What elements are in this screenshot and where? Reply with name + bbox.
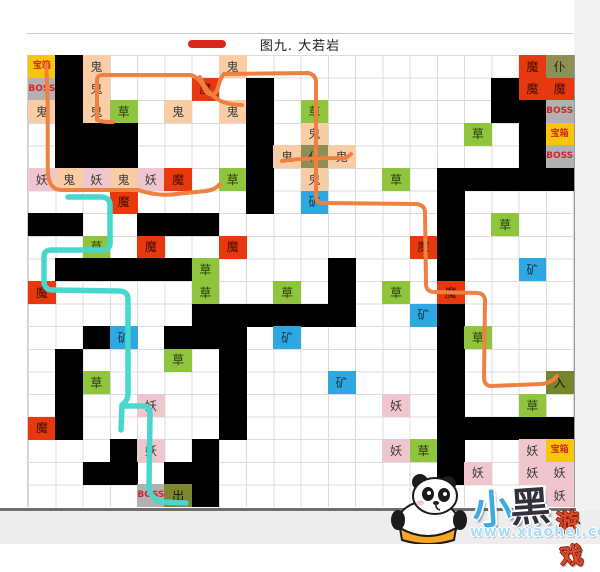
cell-demon: 妖 — [519, 439, 547, 462]
cell-wall — [164, 213, 192, 236]
cell-ore: 矿 — [328, 371, 356, 394]
cell-wall — [246, 168, 274, 191]
cell-grass: 草 — [382, 168, 410, 191]
cell-wall — [437, 371, 465, 394]
cell-wall — [246, 191, 274, 214]
cell-wall — [437, 213, 465, 236]
cell-devil: 魔 — [164, 168, 192, 191]
cell-ghost: 鬼 — [301, 168, 329, 191]
cell-ghost: 鬼 — [83, 100, 111, 123]
cell-wall — [83, 462, 111, 485]
cell-wall — [546, 417, 574, 440]
cell-ore: 矿 — [273, 326, 301, 349]
cell-devil: 魔 — [192, 78, 220, 101]
cell-wall — [219, 371, 247, 394]
cell-devil: 魔 — [219, 236, 247, 259]
cell-wall — [328, 304, 356, 327]
cell-ghost: 鬼 — [83, 55, 111, 78]
cell-wall — [55, 417, 83, 440]
cell-wall — [137, 258, 165, 281]
cell-ghost: 鬼 — [55, 168, 83, 191]
cell-ore: 矿 — [519, 258, 547, 281]
cell-wall — [110, 258, 138, 281]
cell-devil: 魔 — [519, 55, 547, 78]
cell-wall — [219, 394, 247, 417]
cell-wall — [246, 100, 274, 123]
cell-wall — [192, 439, 220, 462]
cell-wall — [110, 145, 138, 168]
cell-wall — [55, 394, 83, 417]
cell-ghost: 鬼 — [83, 78, 111, 101]
map-title: 图九. 大若岩 — [260, 35, 340, 54]
cell-grass: 草 — [192, 281, 220, 304]
cell-ghost: 鬼 — [110, 168, 138, 191]
cell-wall — [437, 394, 465, 417]
cell-grass: 草 — [273, 281, 301, 304]
cell-wall — [273, 304, 301, 327]
cell-wall — [55, 100, 83, 123]
cell-grass: 草 — [110, 100, 138, 123]
cell-ghost: 鬼 — [328, 145, 356, 168]
cell-wall — [246, 304, 274, 327]
cell-boss: BOSS — [546, 100, 574, 123]
cell-wall — [437, 236, 465, 259]
cell-wall — [437, 439, 465, 462]
cell-demon: 妖 — [28, 168, 56, 191]
cell-wall — [55, 145, 83, 168]
cell-wall — [546, 168, 574, 191]
cell-wall — [437, 349, 465, 372]
panda-mascot-icon — [390, 470, 482, 544]
cell-wall — [55, 371, 83, 394]
cell-wall — [164, 462, 192, 485]
cell-wall — [192, 213, 220, 236]
cell-wall — [491, 417, 519, 440]
cell-wall — [437, 168, 465, 191]
cell-wall — [246, 145, 274, 168]
cell-wall — [246, 78, 274, 101]
cell-wall — [83, 326, 111, 349]
cell-chest: 宝箱 — [546, 123, 574, 146]
cell-grass: 草 — [164, 349, 192, 372]
cell-wall — [301, 304, 329, 327]
cell-wall — [437, 326, 465, 349]
title-red-dash — [188, 40, 226, 48]
cell-exit: 出 — [164, 484, 192, 507]
cell-demon: 妖 — [137, 439, 165, 462]
cell-wall — [192, 326, 220, 349]
cell-wall — [164, 258, 192, 281]
cell-grass: 草 — [491, 213, 519, 236]
cell-wall — [55, 78, 83, 101]
cell-wall — [246, 123, 274, 146]
cell-boss: BOSS — [137, 484, 165, 507]
cell-wall — [491, 100, 519, 123]
map-title-bar: 图九. 大若岩 — [27, 33, 573, 56]
cell-grass: 草 — [410, 439, 438, 462]
game-map-page: 图九. 大若岩 宝箱鬼鬼魔仆BOSS鬼魔魔魔鬼鬼草鬼鬼草BOSS鬼草宝箱鬼仆鬼B… — [0, 0, 600, 544]
cell-boss: BOSS — [546, 145, 574, 168]
cell-chest: 宝箱 — [546, 439, 574, 462]
cell-grass: 草 — [382, 281, 410, 304]
cell-wall — [437, 191, 465, 214]
cell-entrance: 入 — [546, 371, 574, 394]
cell-grass: 草 — [192, 258, 220, 281]
cell-wall — [83, 258, 111, 281]
cell-devil: 魔 — [28, 281, 56, 304]
cell-chest: 宝箱 — [28, 55, 56, 78]
cell-devil: 魔 — [519, 78, 547, 101]
cell-grass: 草 — [83, 371, 111, 394]
cell-devil: 魔 — [110, 191, 138, 214]
cell-wall — [464, 168, 492, 191]
cell-grass: 草 — [219, 168, 247, 191]
cell-devil: 魔 — [137, 236, 165, 259]
cell-ghost: 鬼 — [273, 145, 301, 168]
cell-wall — [519, 417, 547, 440]
cell-boss: BOSS — [28, 78, 56, 101]
cell-wall — [491, 168, 519, 191]
watermark-url: www.xiaohei.com — [470, 524, 600, 540]
cell-wall — [328, 258, 356, 281]
cell-wall — [491, 78, 519, 101]
cell-wall — [219, 304, 247, 327]
cell-demon: 妖 — [382, 394, 410, 417]
cell-ghost: 鬼 — [164, 100, 192, 123]
cell-wall — [55, 258, 83, 281]
cell-wall — [328, 281, 356, 304]
cell-wall — [55, 55, 83, 78]
cell-grass: 草 — [464, 326, 492, 349]
cell-wall — [437, 258, 465, 281]
cell-wall — [83, 123, 111, 146]
cell-wall — [192, 304, 220, 327]
cell-ghost: 鬼 — [301, 123, 329, 146]
cell-demon: 妖 — [137, 394, 165, 417]
cell-wall — [219, 349, 247, 372]
cell-wall — [55, 123, 83, 146]
cell-grass: 草 — [83, 236, 111, 259]
cell-grass: 草 — [464, 123, 492, 146]
cell-wall — [28, 213, 56, 236]
cell-wall — [192, 462, 220, 485]
cell-wall — [437, 304, 465, 327]
cell-demon: 妖 — [137, 168, 165, 191]
cell-servant: 仆 — [301, 145, 329, 168]
cell-wall — [519, 123, 547, 146]
cell-ghost: 鬼 — [219, 100, 247, 123]
cell-wall — [192, 484, 220, 507]
cell-wall — [110, 439, 138, 462]
cell-wall — [519, 168, 547, 191]
cell-ore: 矿 — [410, 304, 438, 327]
cell-wall — [219, 326, 247, 349]
cell-demon: 妖 — [382, 439, 410, 462]
dungeon-map-grid: 宝箱鬼鬼魔仆BOSS鬼魔魔魔鬼鬼草鬼鬼草BOSS鬼草宝箱鬼仆鬼BOSS妖鬼妖鬼妖… — [27, 55, 575, 507]
cell-grass: 草 — [301, 100, 329, 123]
cell-wall — [164, 326, 192, 349]
cell-wall — [219, 417, 247, 440]
cell-ghost: 鬼 — [219, 55, 247, 78]
right-margin — [574, 0, 600, 512]
cell-grass: 草 — [519, 394, 547, 417]
cell-devil: 魔 — [437, 281, 465, 304]
cell-wall — [55, 213, 83, 236]
cell-wall — [137, 213, 165, 236]
cell-wall — [519, 100, 547, 123]
cell-wall — [110, 462, 138, 485]
cell-wall — [83, 145, 111, 168]
cell-wall — [55, 349, 83, 372]
cell-demon: 妖 — [83, 168, 111, 191]
cell-ore: 矿 — [110, 326, 138, 349]
cell-devil: 魔 — [28, 417, 56, 440]
site-watermark: 小黑 游戏 www.xiaohei.com — [350, 462, 600, 544]
cell-ore: 矿 — [301, 191, 329, 214]
cell-servant: 仆 — [546, 55, 574, 78]
cell-devil: 魔 — [546, 78, 574, 101]
cell-wall — [437, 417, 465, 440]
cell-ghost: 鬼 — [28, 100, 56, 123]
cell-devil: 魔 — [410, 236, 438, 259]
cell-wall — [519, 145, 547, 168]
cell-wall — [110, 123, 138, 146]
cell-wall — [464, 417, 492, 440]
